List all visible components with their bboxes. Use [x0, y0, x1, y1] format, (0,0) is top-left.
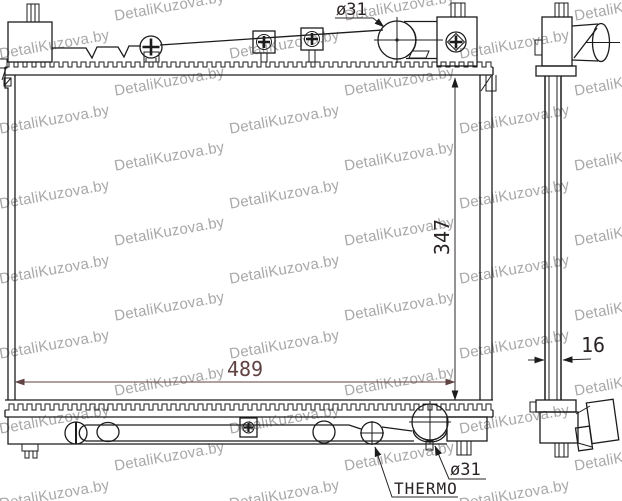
side-top-block: [542, 17, 572, 66]
bottom-fin-band: [5, 410, 493, 417]
radiator-technical-drawing: DetaliKuzova.byDetaliKuzova.byDetaliKuzo…: [0, 0, 622, 501]
side-top-flange: [536, 66, 576, 76]
top-left-pin: [27, 4, 39, 22]
top-left-mount-block: [8, 22, 52, 62]
drawing-canvas: 347 489 ø31 ø31 THERMO: [0, 0, 622, 501]
side-bottom-step: [530, 402, 536, 412]
mount-bracket-2: [301, 28, 323, 62]
bottom-right-pin: [457, 441, 471, 455]
side-bottom-flange: [536, 400, 576, 412]
bottom-outlet-pipe: [409, 401, 451, 450]
right-side-plate: [480, 75, 492, 400]
thickness-dim-label: 16: [581, 333, 605, 357]
bottom-bracket: [240, 418, 257, 437]
tank-hole-2: [313, 421, 335, 443]
side-bottom-block: [540, 412, 578, 443]
mount-bracket-1: [253, 31, 275, 62]
right-top-tab: [481, 75, 496, 91]
top-right-mount-block: [437, 17, 477, 66]
top-tank: [8, 3, 477, 66]
left-side-plate: [5, 75, 15, 400]
width-dim-label: 489: [227, 357, 263, 381]
side-top-tab: [535, 40, 542, 55]
top-fin-band: [5, 67, 493, 75]
drain-petcock: [22, 444, 38, 458]
tank-top-edge-left: [52, 46, 141, 58]
thickness-dimension: 16: [528, 333, 605, 360]
top-diameter-label: ø31: [336, 0, 367, 20]
side-filler-neck: [572, 24, 620, 62]
side-top-pin: [555, 3, 568, 17]
top-right-pin: [451, 3, 465, 17]
thickness-dim-right: [563, 359, 591, 360]
screw-post: [140, 36, 162, 62]
filler-neck: [374, 17, 443, 63]
side-core-inner: [549, 76, 557, 400]
front-view: 347 489 ø31 ø31 THERMO: [0, 0, 496, 498]
side-bottom-pin: [555, 443, 568, 457]
height-dim-label: 347: [430, 219, 454, 255]
bottom-diameter-label: ø31: [450, 460, 481, 480]
thermo-label: THERMO: [394, 479, 458, 498]
bottom-right-mount-block: [447, 417, 487, 441]
side-view: 16: [528, 3, 620, 457]
side-core-outer: [545, 76, 561, 400]
top-strip-end-cap: [0, 59, 7, 80]
side-outlet-pipe: [576, 399, 619, 451]
top-fins: [5, 62, 493, 67]
drain-plug: [65, 422, 87, 444]
